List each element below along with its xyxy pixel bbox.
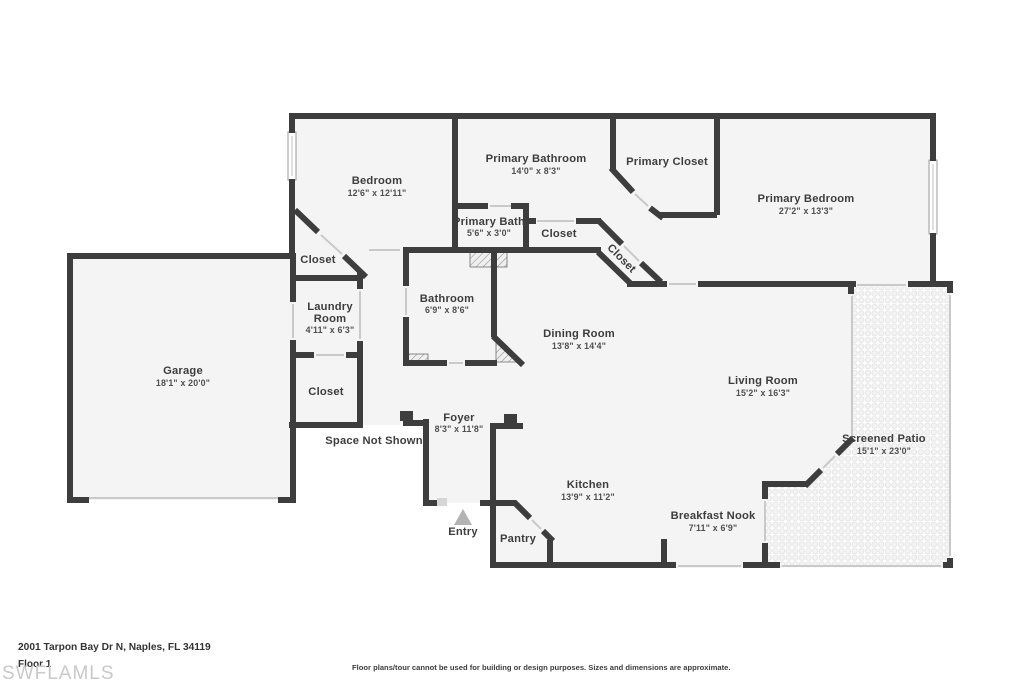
room-label-laundry-line2: Room — [314, 313, 347, 325]
room-dims-screened-patio: 15'1" x 23'0" — [857, 446, 911, 456]
footer: 2001 Tarpon Bay Dr N, Naples, FL 34119 F… — [2, 642, 730, 682]
address-text: 2001 Tarpon Bay Dr N, Naples, FL 34119 — [18, 642, 211, 653]
room-label-bedroom: Bedroom — [352, 175, 403, 187]
room-dims-laundry: 4'11" x 6'3" — [306, 325, 355, 335]
room-label-laundry-line1: Laundry — [307, 301, 353, 313]
room-label-pantry: Pantry — [500, 533, 537, 545]
room-label-bedroom-closet: Closet — [300, 254, 335, 266]
floorplan-page: Bedroom 12'6" x 12'11" Primary Bathroom … — [0, 0, 1024, 682]
room-fills — [70, 113, 950, 568]
shower-hatch — [470, 252, 507, 267]
room-label-lower-closet: Closet — [308, 386, 343, 398]
entry-arrow-icon — [454, 509, 472, 525]
room-dims-bedroom: 12'6" x 12'11" — [348, 188, 407, 198]
space-not-shown-label: Space Not Shown — [325, 435, 422, 447]
room-label-primary-closet: Primary Closet — [626, 156, 708, 168]
room-label-bathroom: Bathroom — [420, 293, 474, 305]
room-label-garage: Garage — [163, 365, 203, 377]
entry-label: Entry — [448, 526, 478, 538]
room-label-living-room: Living Room — [728, 375, 798, 387]
room-label-primary-bathroom: Primary Bathroom — [486, 153, 587, 165]
room-dims-living-room: 15'2" x 16'3" — [736, 388, 790, 398]
room-label-primary-bedroom: Primary Bedroom — [758, 193, 855, 205]
room-dims-primary-bedroom: 27'2" x 13'3" — [779, 206, 833, 216]
room-label-primary-bath: Primary Bath — [453, 216, 525, 228]
room-dims-primary-bathroom: 14'0" x 8'3" — [511, 166, 560, 176]
room-dims-bathroom: 6'9" x 8'6" — [425, 305, 469, 315]
room-label-hall-closet: Closet — [541, 228, 576, 240]
room-dims-garage: 18'1" x 20'0" — [156, 378, 210, 388]
floorplan-svg: Bedroom 12'6" x 12'11" Primary Bathroom … — [0, 0, 1024, 682]
room-dims-dining-room: 13'8" x 14'4" — [552, 341, 606, 351]
room-label-breakfast-nook: Breakfast Nook — [671, 510, 756, 522]
disclaimer-text: Floor plans/tour cannot be used for buil… — [352, 663, 730, 672]
room-label-kitchen: Kitchen — [567, 479, 609, 491]
room-dims-primary-bath: 5'6" x 3'0" — [467, 228, 511, 238]
room-dims-foyer: 8'3" x 11'8" — [435, 424, 484, 434]
room-label-dining-room: Dining Room — [543, 328, 615, 340]
room-dims-breakfast-nook: 7'11" x 6'9" — [689, 523, 738, 533]
watermark-text: SWFLAMLS — [2, 663, 115, 682]
room-label-foyer: Foyer — [443, 412, 475, 424]
room-dims-kitchen: 13'9" x 11'2" — [561, 492, 615, 502]
room-label-screened-patio: Screened Patio — [842, 433, 926, 445]
